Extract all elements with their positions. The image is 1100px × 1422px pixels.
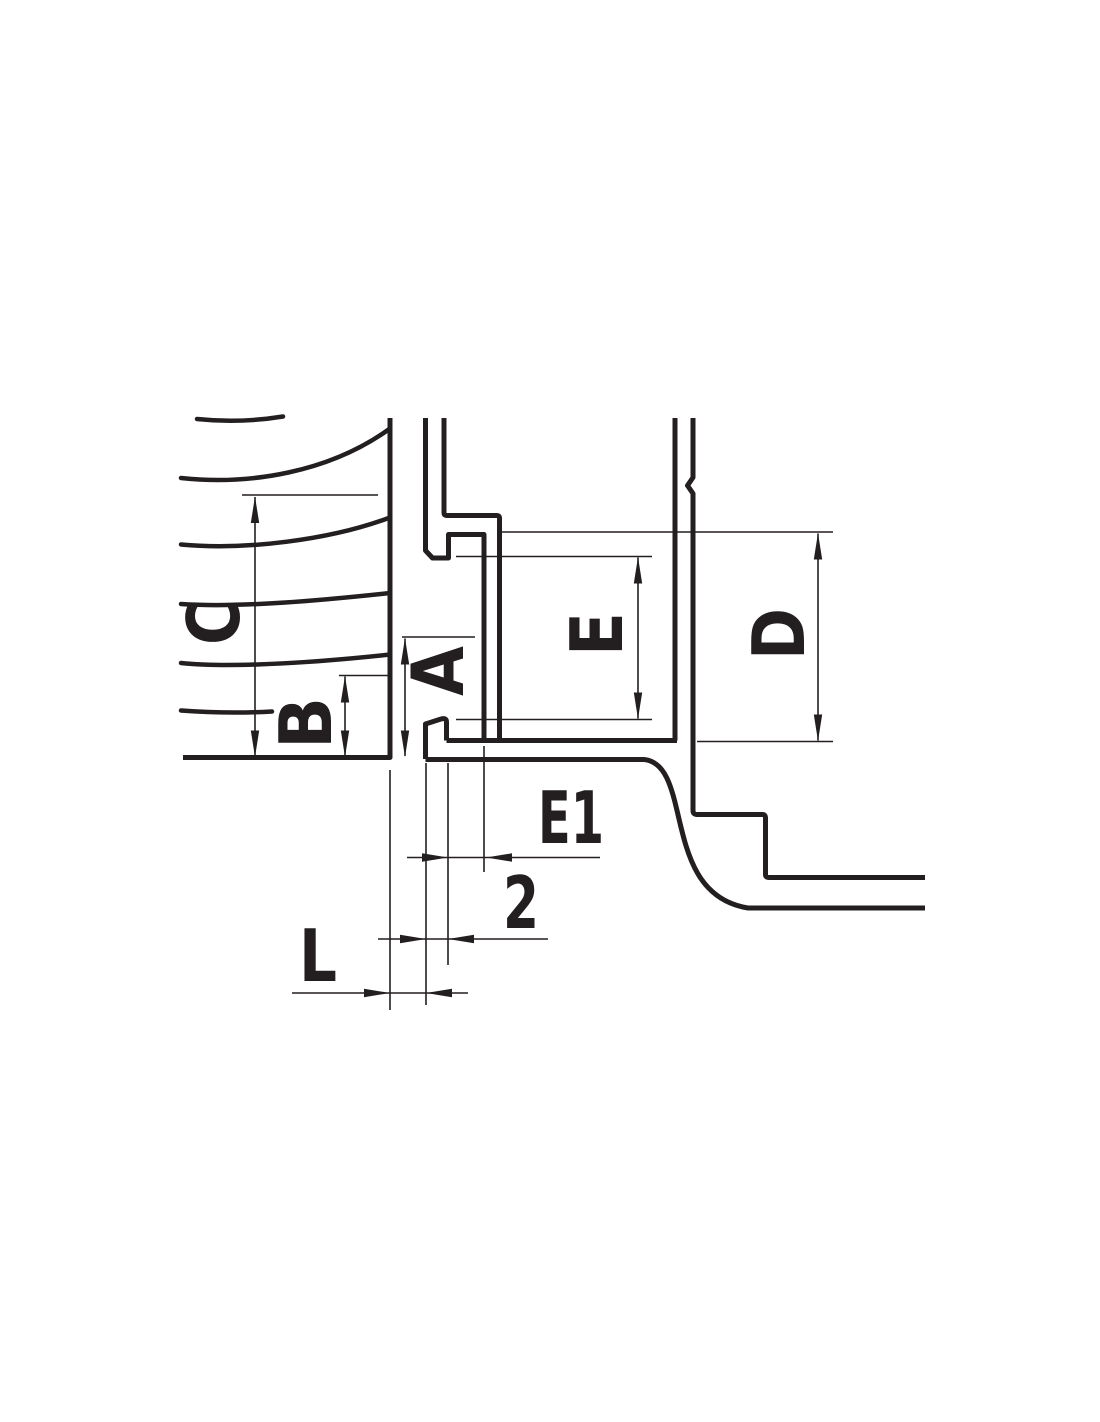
dim-label-d: D — [737, 608, 821, 660]
technical-drawing: C B A E D E1 2 L — [0, 0, 1100, 1422]
arrow-l-right — [426, 989, 452, 997]
dim-label-l: L — [299, 914, 337, 998]
dim-label-2: 2 — [503, 861, 539, 945]
dim-label-a: A — [396, 646, 480, 696]
arrow-c-down — [251, 731, 259, 758]
drawing-canvas: C B A E D E1 2 L — [0, 0, 1100, 1422]
arrow-2-right — [448, 935, 474, 943]
arrow-2-left — [400, 935, 426, 943]
dim-label-e: E — [555, 612, 639, 656]
dim-label-b: B — [264, 697, 348, 749]
blade-curve-2 — [181, 518, 390, 547]
arrow-e-down — [634, 693, 642, 720]
dim-label-e1: E1 — [538, 776, 604, 860]
dim-label-c: C — [172, 599, 256, 645]
housing-outer-surface — [426, 760, 926, 909]
arrow-e-up — [634, 557, 642, 584]
blade-curve-4 — [181, 655, 390, 665]
arrow-a-down — [401, 731, 409, 758]
blade-curve-5 — [181, 711, 272, 713]
arrow-e1-left — [422, 853, 448, 861]
arrow-d-down — [814, 715, 822, 742]
blade-curve-1 — [181, 429, 390, 480]
arrow-d-up — [814, 533, 822, 560]
dimension-labels: C B A E D E1 2 L — [172, 599, 821, 998]
blade-curve-top — [197, 417, 283, 421]
lower-hole-flange — [426, 719, 447, 759]
arrow-c-up — [251, 497, 259, 524]
arrow-l-left — [364, 989, 390, 997]
